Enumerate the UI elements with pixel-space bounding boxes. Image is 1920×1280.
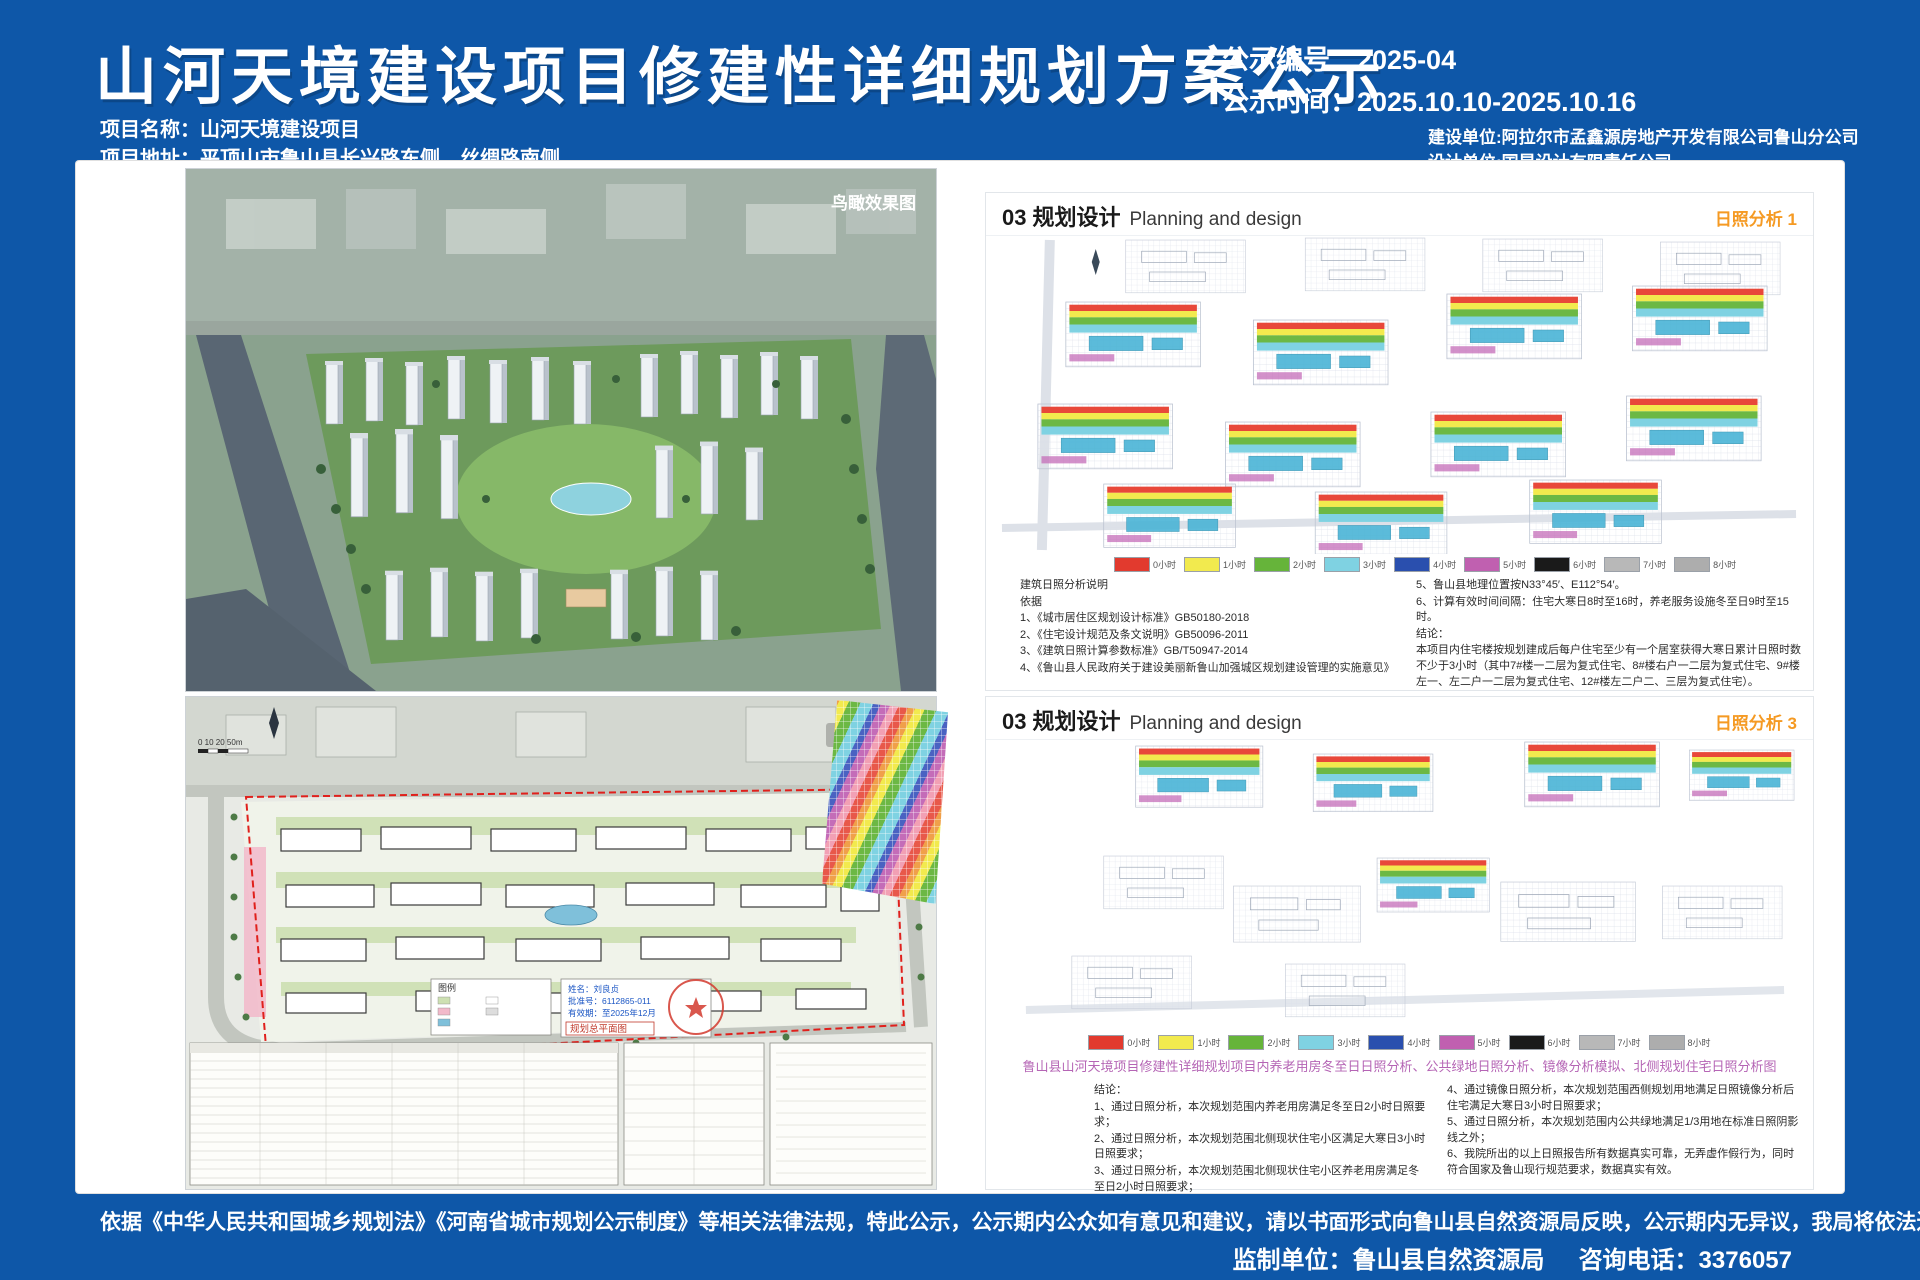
cert-validity: 有效期：至2025年12月 xyxy=(568,1008,656,1018)
consult-phone: 咨询电话：3376057 xyxy=(1579,1240,1792,1275)
legend-label: 5小时 xyxy=(1503,558,1526,571)
legend-label: 0小时 xyxy=(1127,1036,1150,1049)
note-line: 6、计算有效时间间隔：住宅大寒日8时至16时，养老服务设施冬至日9时至15时。 xyxy=(1416,595,1801,626)
notes-title: 建筑日照分析说明 xyxy=(1020,578,1400,594)
notes-extra-list: 5、鲁山县地理位置按N33°45′、E112°54′。6、计算有效时间间隔：住宅… xyxy=(1416,578,1801,626)
conclusion-line: 5、通过日照分析，本次规划范围内公共绿地满足1/3用地在标准日照阴影线之外； xyxy=(1447,1115,1799,1146)
aerial-caption: 鸟瞰效果图 xyxy=(831,193,916,213)
sunshine-analysis-panel-3: 03 规划设计 Planning and design 日照分析 3 xyxy=(985,696,1814,1190)
section-title: 规划设计 xyxy=(1032,704,1120,736)
legend-item: 4小时 xyxy=(1368,1035,1430,1050)
note-line: 1、《城市居住区规划设计标准》GB50180-2018 xyxy=(1020,611,1400,627)
analysis-tag-3: 日照分析 3 xyxy=(1715,709,1797,734)
sunshine-diagram-3 xyxy=(986,740,1811,1032)
legend-label: 2小时 xyxy=(1267,1036,1290,1049)
legend-label: 6小时 xyxy=(1573,558,1596,571)
aerial-render-panel: 鸟瞰效果图 xyxy=(185,168,937,692)
note-line: 2、《住宅设计规范及条文说明》GB50096-2011 xyxy=(1020,628,1400,644)
legend-swatch xyxy=(1579,1035,1615,1050)
siteplan-panel: 0 10 20 50m 总平面图 图例 姓名：刘良贞 批准号：6112865-0… xyxy=(185,696,937,1190)
notes-left-column: 建筑日照分析说明 依据 1、《城市居住区规划设计标准》GB50180-20182… xyxy=(1020,578,1400,691)
legend-label: 4小时 xyxy=(1407,1036,1430,1049)
legend-swatch xyxy=(1604,557,1640,572)
legend-swatch xyxy=(1534,557,1570,572)
siteplan-scalebar: 0 10 20 50m xyxy=(198,738,243,747)
notes-basis-list: 1、《城市居住区规划设计标准》GB50180-20182、《住宅设计规范及条文说… xyxy=(1020,611,1400,676)
legend-item: 2小时 xyxy=(1254,557,1316,572)
poster: { "header": { "title": "山河天境建设项目修建性详细规划方… xyxy=(0,0,1920,1280)
legend-swatch xyxy=(1394,557,1430,572)
conclusion-line: 2、通过日照分析，本次规划范围北侧现状住宅小区满足大寒日3小时日照要求； xyxy=(1094,1132,1429,1163)
conclusions-left-column: 结论： 1、通过日照分析，本次规划范围内养老用房满足冬至日2小时日照要求；2、通… xyxy=(1094,1083,1429,1196)
note-line: 3、《建筑日照计算参数标准》GB/T50947-2014 xyxy=(1020,644,1400,660)
legend-swatch xyxy=(1114,557,1150,572)
section-number: 03 xyxy=(1002,709,1026,735)
legend-swatch xyxy=(1298,1035,1334,1050)
supervisor-unit: 监制单位：鲁山县自然资源局 xyxy=(1233,1240,1545,1275)
legend-label: 2小时 xyxy=(1293,558,1316,571)
conclusions-right-list: 4、通过镜像日照分析，本次规划范围西侧规划用地满足日照镜像分析后住宅满足大寒日3… xyxy=(1447,1083,1799,1179)
legend-swatch xyxy=(1184,557,1220,572)
supervisor-line: 监制单位：鲁山县自然资源局 咨询电话：3376057 xyxy=(1233,1240,1792,1275)
content-board: 鸟瞰效果图 xyxy=(75,160,1845,1194)
legend-label: 0小时 xyxy=(1153,558,1176,571)
legend-label: 8小时 xyxy=(1713,558,1736,571)
siteplan-drawing: 0 10 20 50m 总平面图 图例 姓名：刘良贞 批准号：6112865-0… xyxy=(186,697,936,1189)
legend-item: 1小时 xyxy=(1184,557,1246,572)
legend-swatch xyxy=(1158,1035,1194,1050)
legend-item: 5小时 xyxy=(1464,557,1526,572)
notice-period: 公示时间：2025.10.10-2025.10.16 xyxy=(1222,82,1636,124)
legend-item: 6小时 xyxy=(1534,557,1596,572)
section-title: 规划设计 xyxy=(1032,200,1120,232)
conclusion-line: 4、通过镜像日照分析，本次规划范围西侧规划用地满足日照镜像分析后住宅满足大寒日3… xyxy=(1447,1083,1799,1114)
panel1-notes: 建筑日照分析说明 依据 1、《城市居住区规划设计标准》GB50180-20182… xyxy=(986,572,1813,691)
legend-label: 7小时 xyxy=(1643,558,1666,571)
page-title: 山河天境建设项目修建性详细规划方案公示 xyxy=(95,26,1205,116)
legend-label: 1小时 xyxy=(1197,1036,1220,1049)
legend-item: 5小时 xyxy=(1439,1035,1501,1050)
legend-item: 6小时 xyxy=(1509,1035,1571,1050)
siteplan-stamp-title: 规划总平面图 xyxy=(570,1023,627,1035)
legend-swatch xyxy=(1464,557,1500,572)
conclusion-text: 本项目内住宅楼按规划建成后每户住宅至少有一个居室获得大寒日累计日照时数不少于3小… xyxy=(1416,643,1801,690)
note-line: 4、《鲁山县人民政府关于建设美丽新鲁山加强城区规划建设管理的实施意见》 xyxy=(1020,661,1400,677)
legend-swatch xyxy=(1228,1035,1264,1050)
legend-swatch xyxy=(1509,1035,1545,1050)
panel2-header: 03 规划设计 Planning and design 日照分析 3 xyxy=(986,697,1813,740)
conclusion-title: 结论： xyxy=(1416,627,1801,643)
legend-label: 4小时 xyxy=(1433,558,1456,571)
conclusion-line: 3、通过日照分析，本次规划范围北侧现状住宅小区养老用房满足冬至日2小时日照要求； xyxy=(1094,1164,1429,1195)
notes-right-column: 5、鲁山县地理位置按N33°45′、E112°54′。6、计算有效时间间隔：住宅… xyxy=(1400,578,1801,691)
legal-notice: 依据《中华人民共和国城乡规划法》《河南省城市规划公示制度》等相关法律法规，特此公… xyxy=(100,1206,1820,1236)
section-number: 03 xyxy=(1002,205,1026,231)
legend-label: 8小时 xyxy=(1688,1036,1711,1049)
legend-swatch xyxy=(1254,557,1290,572)
note-line: 5、鲁山县地理位置按N33°45′、E112°54′。 xyxy=(1416,578,1801,594)
builder-unit: 建设单位:阿拉尔市孟鑫源房地产开发有限公司鲁山分公司 xyxy=(1428,126,1859,151)
legend-swatch xyxy=(1088,1035,1124,1050)
analysis-tag-1: 日照分析 1 xyxy=(1715,205,1797,230)
cert-number: 批准号：6112865-011 xyxy=(568,996,651,1006)
legend-item: 8小时 xyxy=(1674,557,1736,572)
legend-swatch xyxy=(1324,557,1360,572)
panel1-header: 03 规划设计 Planning and design 日照分析 1 xyxy=(986,193,1813,236)
legend-label: 3小时 xyxy=(1363,558,1386,571)
legend-item: 0小时 xyxy=(1088,1035,1150,1050)
panel2-conclusions: 结论： 1、通过日照分析，本次规划范围内养老用房满足冬至日2小时日照要求；2、通… xyxy=(986,1075,1813,1196)
legend-item: 1小时 xyxy=(1158,1035,1220,1050)
cert-name: 姓名：刘良贞 xyxy=(568,984,619,994)
project-name: 项目名称：山河天境建设项目 xyxy=(100,116,560,145)
legend-item: 3小时 xyxy=(1298,1035,1360,1050)
aerial-rendering: 鸟瞰效果图 xyxy=(186,169,936,691)
notice-number: 公示编号：2025-04 xyxy=(1222,40,1636,82)
sunshine-inset-detail xyxy=(822,700,948,904)
legend-item: 8小时 xyxy=(1649,1035,1711,1050)
legend-swatch xyxy=(1368,1035,1404,1050)
legend-label: 5小时 xyxy=(1478,1036,1501,1049)
sunshine-legend-3: 0小时 1小时 2小时 3小时 xyxy=(986,1032,1813,1050)
legend-item: 4小时 xyxy=(1394,557,1456,572)
legend-swatch xyxy=(1439,1035,1475,1050)
conclusions-left-list: 1、通过日照分析，本次规划范围内养老用房满足冬至日2小时日照要求；2、通过日照分… xyxy=(1094,1100,1429,1196)
conclusion-title: 结论： xyxy=(1094,1083,1429,1099)
legend-label: 3小时 xyxy=(1337,1036,1360,1049)
legend-item: 2小时 xyxy=(1228,1035,1290,1050)
legend-swatch xyxy=(1649,1035,1685,1050)
conclusion-line: 1、通过日照分析，本次规划范围内养老用房满足冬至日2小时日照要求； xyxy=(1094,1100,1429,1131)
legend-item: 7小时 xyxy=(1604,557,1666,572)
notes-basis-label: 依据 xyxy=(1020,595,1400,611)
section-subtitle-en: Planning and design xyxy=(1130,713,1302,735)
legend-label: 7小时 xyxy=(1618,1036,1641,1049)
legend-item: 0小时 xyxy=(1114,557,1176,572)
legend-item: 7小时 xyxy=(1579,1035,1641,1050)
sunshine-legend-1: 0小时 1小时 2小时 3小时 xyxy=(986,554,1813,572)
legend-swatch xyxy=(1674,557,1710,572)
siteplan-legend-title: 图例 xyxy=(438,982,456,993)
notice-meta: 公示编号：2025-04 公示时间：2025.10.10-2025.10.16 xyxy=(1222,40,1636,124)
sunshine-diagram-1 xyxy=(986,236,1811,554)
legend-item: 3小时 xyxy=(1324,557,1386,572)
conclusions-right-column: 4、通过镜像日照分析，本次规划范围西侧规划用地满足日照镜像分析后住宅满足大寒日3… xyxy=(1429,1083,1799,1196)
legend-label: 6小时 xyxy=(1548,1036,1571,1049)
sunshine-analysis-panel-1: 03 规划设计 Planning and design 日照分析 1 xyxy=(985,192,1814,691)
legend-label: 1小时 xyxy=(1223,558,1246,571)
conclusion-line: 6、我院所出的以上日照报告所有数据真实可靠，无弄虚作假行为，同时符合国家及鲁山现… xyxy=(1447,1147,1799,1178)
panel2-caption: 鲁山县山河天境项目修建性详细规划项目内养老用房冬至日日照分析、公共绿地日照分析、… xyxy=(986,1056,1813,1075)
section-subtitle-en: Planning and design xyxy=(1130,209,1302,231)
